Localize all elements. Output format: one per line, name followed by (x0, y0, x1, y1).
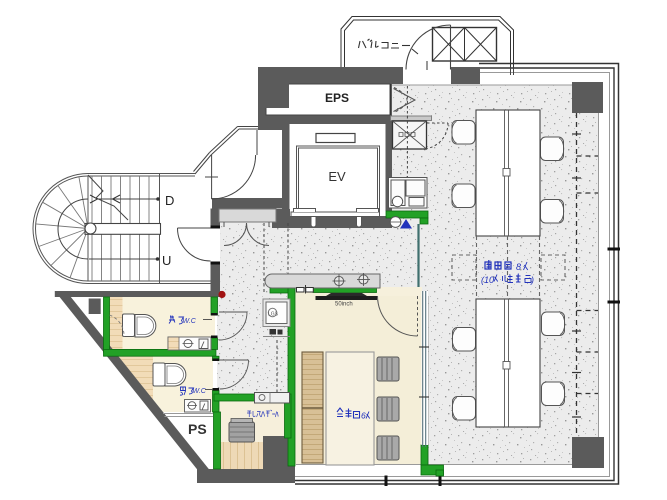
svg-text:W.C: W.C (183, 318, 197, 325)
svg-text:W.C: W.C (193, 388, 207, 395)
svg-text:50inch: 50inch (335, 302, 353, 308)
svg-text:EV: EV (328, 169, 346, 184)
svg-text:D: D (165, 193, 174, 208)
svg-text:EPS: EPS (325, 91, 349, 105)
svg-text:(10: (10 (481, 275, 494, 285)
svg-text:8: 8 (516, 262, 521, 272)
svg-text:PS: PS (188, 421, 207, 437)
svg-text:6: 6 (361, 411, 366, 421)
svg-text:LGS: LGS (268, 312, 279, 318)
svg-text:U: U (162, 253, 171, 268)
